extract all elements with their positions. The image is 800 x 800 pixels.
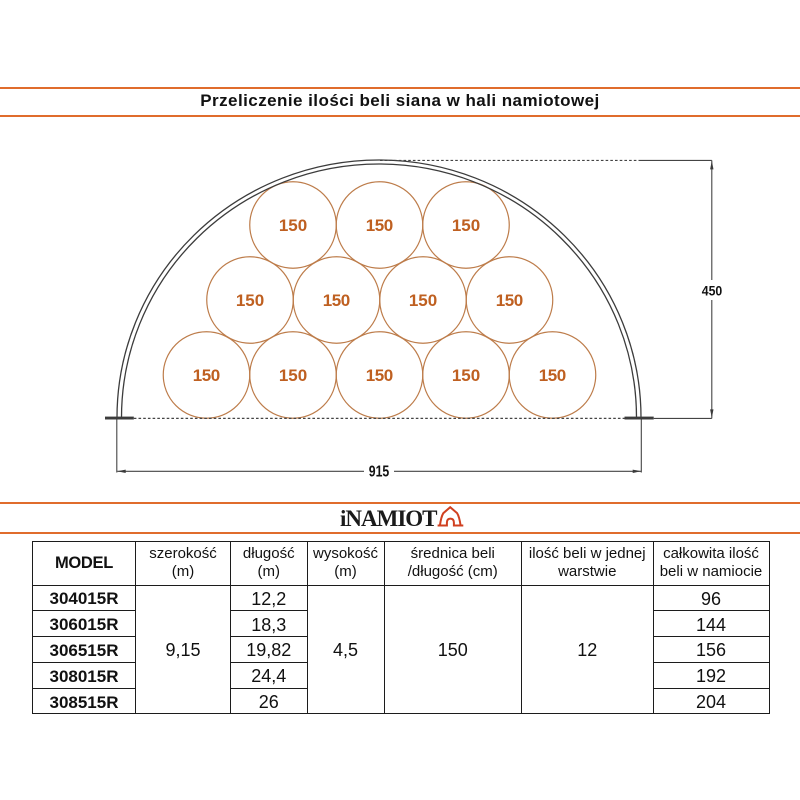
- svg-text:150: 150: [452, 216, 480, 235]
- svg-text:150: 150: [279, 216, 307, 235]
- svg-text:150: 150: [496, 291, 524, 310]
- svg-text:150: 150: [236, 291, 264, 310]
- svg-text:150: 150: [279, 366, 307, 385]
- svg-text:150: 150: [366, 216, 394, 235]
- svg-text:150: 150: [409, 291, 437, 310]
- svg-text:150: 150: [452, 366, 480, 385]
- svg-text:915: 915: [369, 463, 390, 480]
- svg-text:150: 150: [323, 291, 351, 310]
- svg-text:450: 450: [702, 282, 723, 298]
- svg-text:150: 150: [366, 366, 394, 385]
- svg-text:150: 150: [539, 366, 567, 385]
- svg-text:150: 150: [193, 366, 221, 385]
